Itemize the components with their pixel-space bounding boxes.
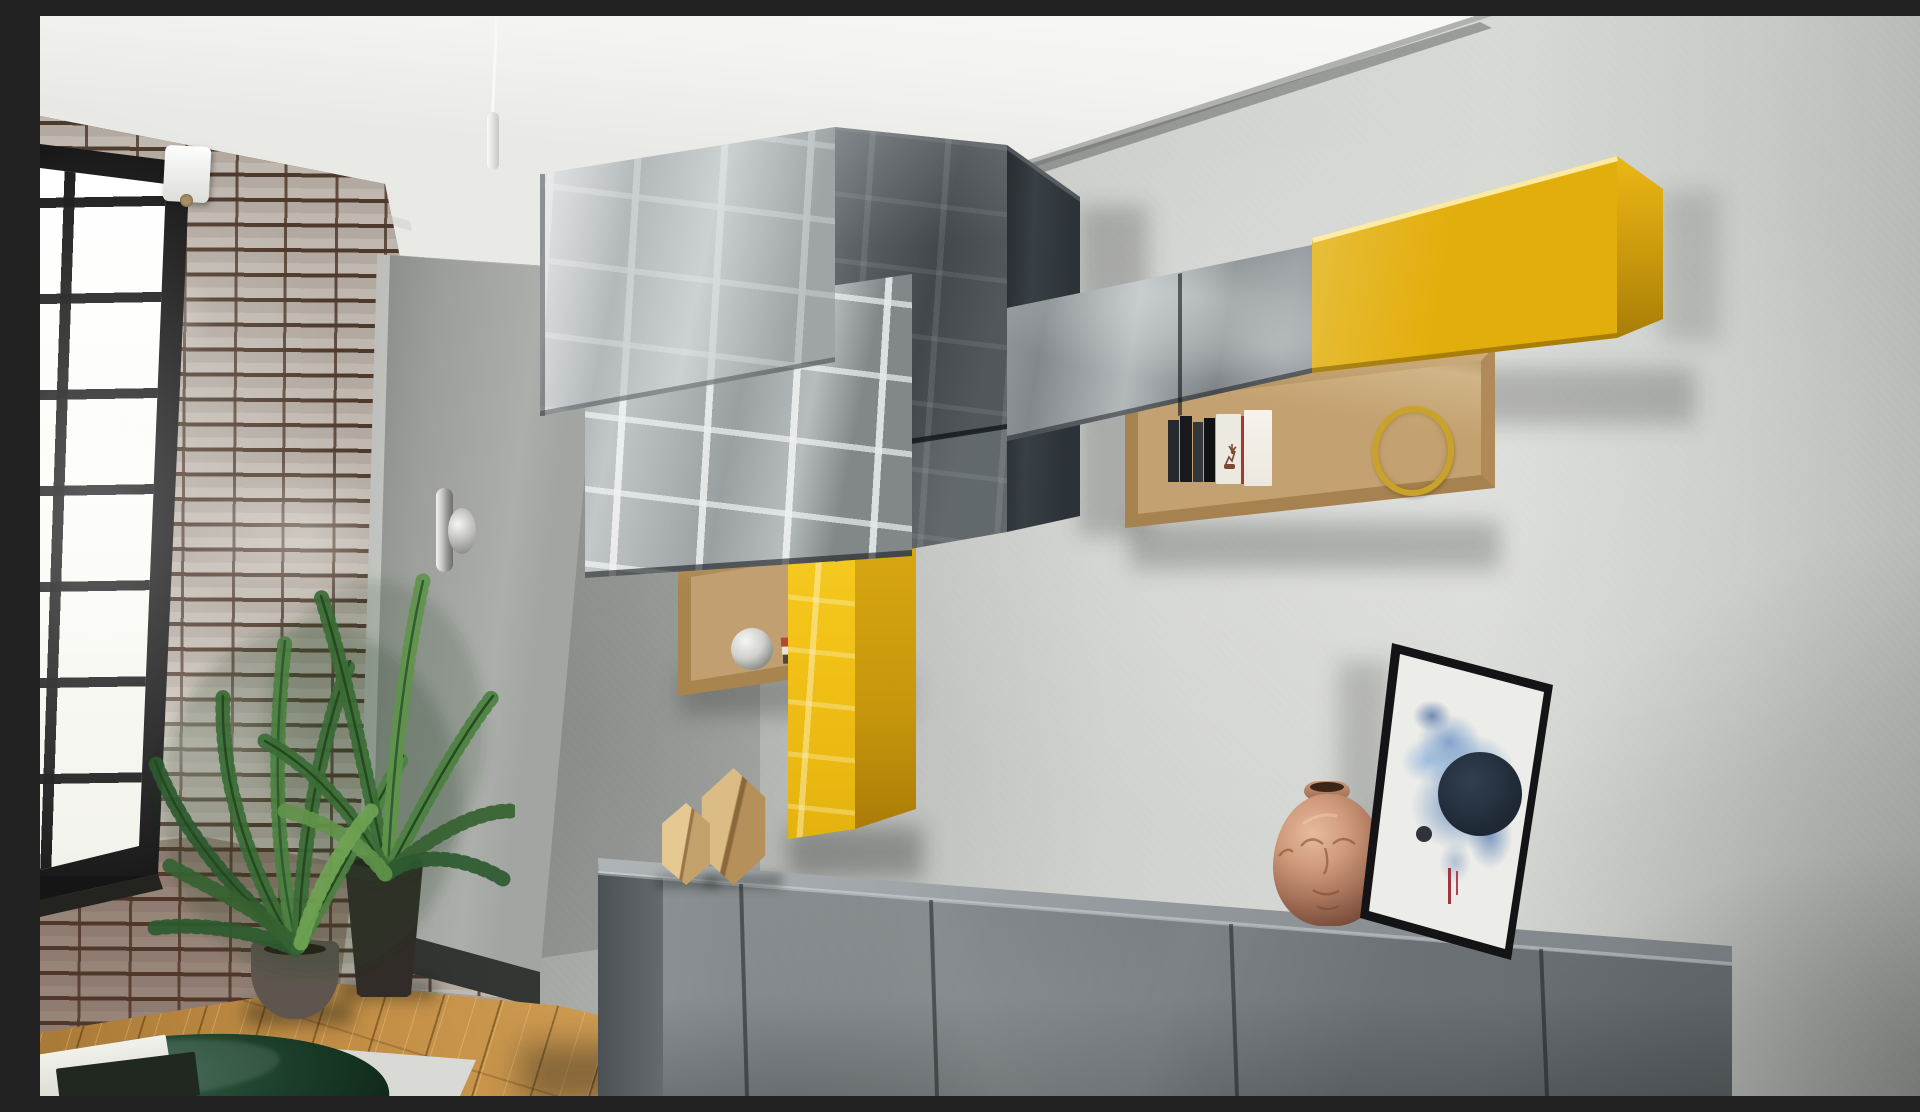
living-room-photo (40, 16, 1920, 1096)
vignette (40, 16, 1920, 1096)
